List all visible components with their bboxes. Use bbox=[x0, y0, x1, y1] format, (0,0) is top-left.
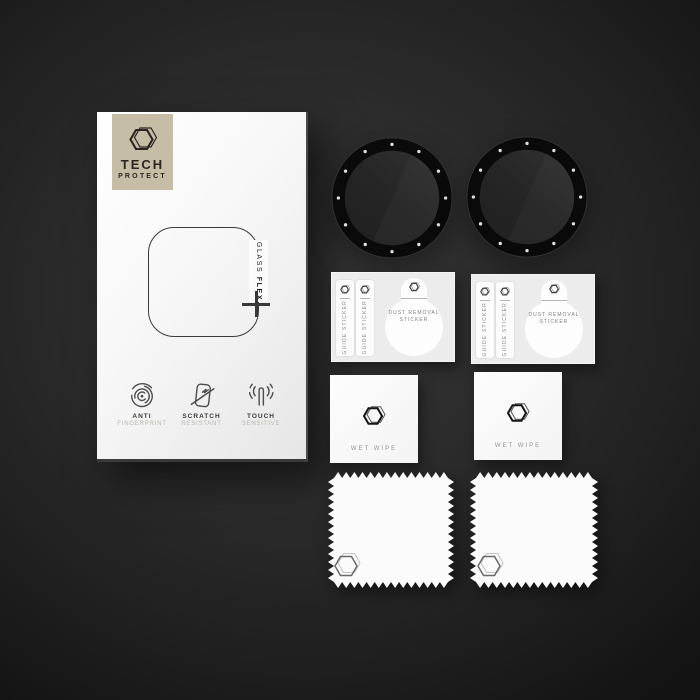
hexagon-logo-icon bbox=[479, 286, 491, 297]
feature-title: TOUCH bbox=[247, 413, 275, 420]
guide-sticker-strip: GUIDE STICKER bbox=[476, 282, 494, 358]
tech-protect-hexagon-logo-icon bbox=[124, 123, 162, 155]
feature-anti-fingerprint: ANTI FINGERPRINT bbox=[115, 380, 169, 427]
sticker-sheet-2: GUIDE STICKER GUIDE STICKER DUST REMOVAL… bbox=[471, 274, 595, 364]
guide-sticker-strip: GUIDE STICKER bbox=[496, 282, 514, 358]
dust-removal-label-line2: STICKER bbox=[389, 317, 440, 324]
feature-icons-row: ANTI FINGERPRINT SCRATCH RESISTANT bbox=[97, 380, 306, 427]
guide-sticker-strip: GUIDE STICKER bbox=[336, 280, 354, 356]
hexagon-logo-icon bbox=[361, 405, 387, 427]
dust-removal-sticker: DUST REMOVAL STICKER bbox=[382, 275, 446, 359]
wet-wipe-label: WET WIPE bbox=[495, 443, 541, 449]
feature-scratch-resistant: SCRATCH RESISTANT bbox=[175, 380, 229, 427]
feature-touch-sensitive: TOUCH SENSITIVE bbox=[234, 380, 288, 427]
fingerprint-icon bbox=[127, 380, 157, 410]
touch-sensitive-icon bbox=[246, 380, 276, 410]
dust-removal-sticker: DUST REMOVAL STICKER bbox=[522, 277, 586, 361]
brand-name-bottom: PROTECT bbox=[118, 173, 167, 180]
feature-subtitle: FINGERPRINT bbox=[117, 421, 166, 427]
dust-removal-label-line1: DUST REMOVAL bbox=[389, 310, 440, 317]
watch-screen-protector-2 bbox=[466, 136, 588, 258]
scratch-resistant-icon bbox=[187, 380, 217, 410]
product-photo-scene: TECH PROTECT GLASS FLEX ANTI FINGERPRINT bbox=[0, 0, 700, 700]
microfiber-cloth-1 bbox=[328, 472, 454, 588]
hexagon-logo-icon bbox=[505, 402, 531, 424]
plus-icon bbox=[242, 291, 270, 317]
product-box: TECH PROTECT GLASS FLEX ANTI FINGERPRINT bbox=[97, 112, 308, 462]
divider bbox=[541, 300, 567, 301]
dust-removal-label-line1: DUST REMOVAL bbox=[529, 312, 580, 319]
feature-subtitle: SENSITIVE bbox=[242, 421, 281, 427]
glass-word: GLASS bbox=[255, 241, 262, 272]
wet-wipe-label: WET WIPE bbox=[351, 446, 397, 452]
guide-sticker-label: GUIDE STICKER bbox=[482, 302, 488, 357]
microfiber-cloth-2 bbox=[470, 472, 598, 588]
sticker-sheet-1: GUIDE STICKER GUIDE STICKER DUST REMOVAL… bbox=[331, 272, 455, 362]
hexagon-logo-icon bbox=[408, 281, 421, 293]
hexagon-logo-icon bbox=[499, 286, 511, 297]
guide-sticker-label: GUIDE STICKER bbox=[362, 300, 368, 355]
screen-protector-outline: GLASS FLEX bbox=[148, 227, 259, 337]
guide-sticker-label: GUIDE STICKER bbox=[502, 302, 508, 357]
feature-subtitle: RESISTANT bbox=[181, 421, 221, 427]
hexagon-logo-icon bbox=[359, 284, 371, 295]
feature-title: ANTI bbox=[132, 413, 151, 420]
watch-screen-protector-1 bbox=[331, 137, 453, 259]
wet-wipe-packet-2: WET WIPE bbox=[474, 372, 562, 460]
guide-sticker-label: GUIDE STICKER bbox=[342, 300, 348, 355]
divider bbox=[401, 298, 427, 299]
dust-removal-label-line2: STICKER bbox=[529, 319, 580, 326]
feature-title: SCRATCH bbox=[182, 413, 220, 420]
guide-sticker-strip: GUIDE STICKER bbox=[356, 280, 374, 356]
hexagon-logo-icon bbox=[339, 284, 351, 295]
brand-badge: TECH PROTECT bbox=[112, 114, 173, 190]
hexagon-logo-icon bbox=[548, 283, 561, 295]
brand-name-top: TECH bbox=[121, 157, 164, 172]
wet-wipe-packet-1: WET WIPE bbox=[330, 375, 418, 463]
